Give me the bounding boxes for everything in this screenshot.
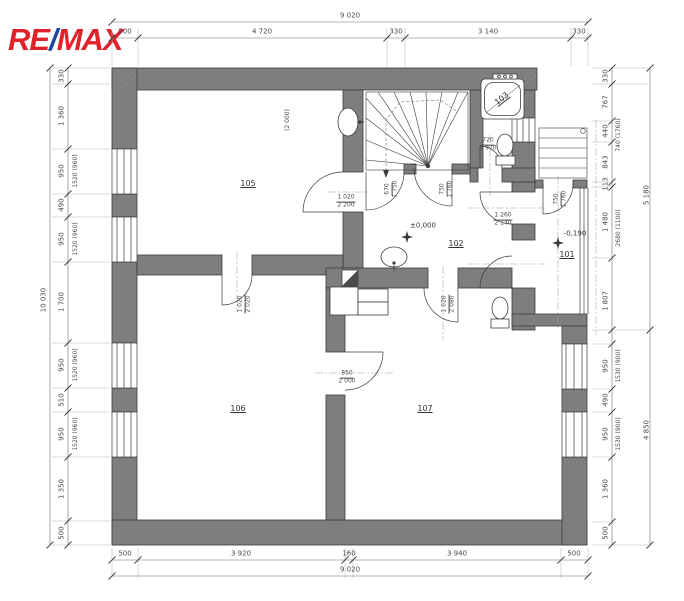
dim-bottom-total: 9 020 (340, 567, 360, 574)
dim-right-up-4: 113 (603, 177, 610, 190)
exterior-stairs (539, 128, 587, 178)
dim-right-up-5: 1 480 (603, 212, 610, 232)
dim-left-10: 500 (59, 526, 66, 539)
dim-left-total: 10 030 (41, 288, 48, 313)
window-ann-left-0: 1520 (960) (73, 154, 79, 187)
level-hall: ±0,000 (410, 223, 436, 230)
dim-right-up-3: 843 (603, 155, 610, 168)
door-label-to-105: 1 0202 200 (336, 195, 355, 210)
niche-annotation: (2 000) (285, 109, 291, 131)
room-label-101: 101 (559, 251, 574, 259)
dim-bottom-3: 3 940 (447, 551, 467, 558)
dim-left-3: 490 (59, 198, 66, 211)
dim-right-low-4: 500 (603, 526, 610, 539)
dim-top-total: 9 020 (340, 13, 360, 20)
dim-left-7: 510 (59, 393, 66, 406)
door-label-to-107: 1 0202 080 (442, 294, 457, 313)
floor-plan-page: RE/MAX (0, 0, 684, 601)
dim-left-0: 330 (59, 69, 66, 82)
dim-left-4: 950 (59, 232, 66, 245)
dim-top-4: 330 (572, 29, 585, 36)
dim-right-low-2: 950 (603, 427, 610, 440)
toilet-107 (491, 297, 509, 328)
dim-left-5: 1 700 (59, 292, 66, 312)
dim-bottom-2: 160 (342, 551, 355, 558)
dim-bottom-4: 500 (567, 551, 580, 558)
dim-left-2: 950 (59, 164, 66, 177)
fixtures (330, 74, 587, 328)
door-label-to-106: 1 0202 020 (238, 294, 253, 313)
dim-right-up-2: 440 (603, 124, 610, 137)
dim-right-low-0: 950 (603, 359, 610, 372)
dim-left-1: 1 360 (59, 106, 66, 126)
room-label-102: 102 (448, 240, 463, 248)
room-label-106: 106 (230, 405, 245, 413)
level-stars (401, 231, 564, 249)
dim-right-total-1: 4 850 (644, 420, 651, 440)
dim-top-1: 4 720 (252, 29, 272, 36)
floor-plan-drawing (0, 0, 684, 601)
level-entry: -0,190 (564, 231, 587, 238)
dim-bottom-1: 3 920 (231, 551, 251, 558)
dim-left-8: 950 (59, 427, 66, 440)
washbasin-hall (381, 247, 407, 271)
dim-right-low-1: 490 (603, 393, 610, 406)
door-label-stair: 6701 750 (385, 180, 400, 197)
dim-right-up-0: 330 (603, 69, 610, 82)
window-ann-left-2: 1520 (960) (73, 348, 79, 381)
window-ann-left-1: 1520 (960) (73, 222, 79, 255)
window-ann-right-0: 740 (1760) (616, 118, 622, 151)
window-ann-right-low-0: 1530 (900) (616, 349, 622, 382)
dim-left-9: 1 350 (59, 479, 66, 499)
cabinets (330, 287, 388, 315)
dim-right-low-3: 1 360 (603, 479, 610, 499)
window-ann-left-3: 1520 (960) (73, 417, 79, 450)
chimney (342, 270, 358, 286)
dim-bottom-0: 500 (118, 551, 131, 558)
dim-top-0: 500 (118, 29, 131, 36)
door-label-hall-top: 7501 760 (440, 180, 455, 197)
dim-top-3: 3 140 (478, 29, 498, 36)
door-label-wc: 7201 970 (479, 138, 496, 153)
window-ann-right-low-1: 1530 (900) (616, 417, 622, 450)
window-ann-right-1: 2680 (1100) (616, 209, 622, 246)
door-label-entry: 7501 760 (554, 190, 569, 207)
dim-left-6: 950 (59, 358, 66, 371)
dim-top-2: 330 (389, 29, 402, 36)
dim-right-up-1: 767 (603, 95, 610, 108)
door-label-to-entry: 1 2602 140 (493, 213, 512, 228)
door-label-106-107: 8502 000 (338, 371, 355, 386)
room-label-107: 107 (417, 405, 432, 413)
dim-right-up-6: 1 807 (603, 291, 610, 311)
room-label-105: 105 (240, 180, 255, 188)
dim-right-total-0: 5 180 (644, 185, 651, 205)
